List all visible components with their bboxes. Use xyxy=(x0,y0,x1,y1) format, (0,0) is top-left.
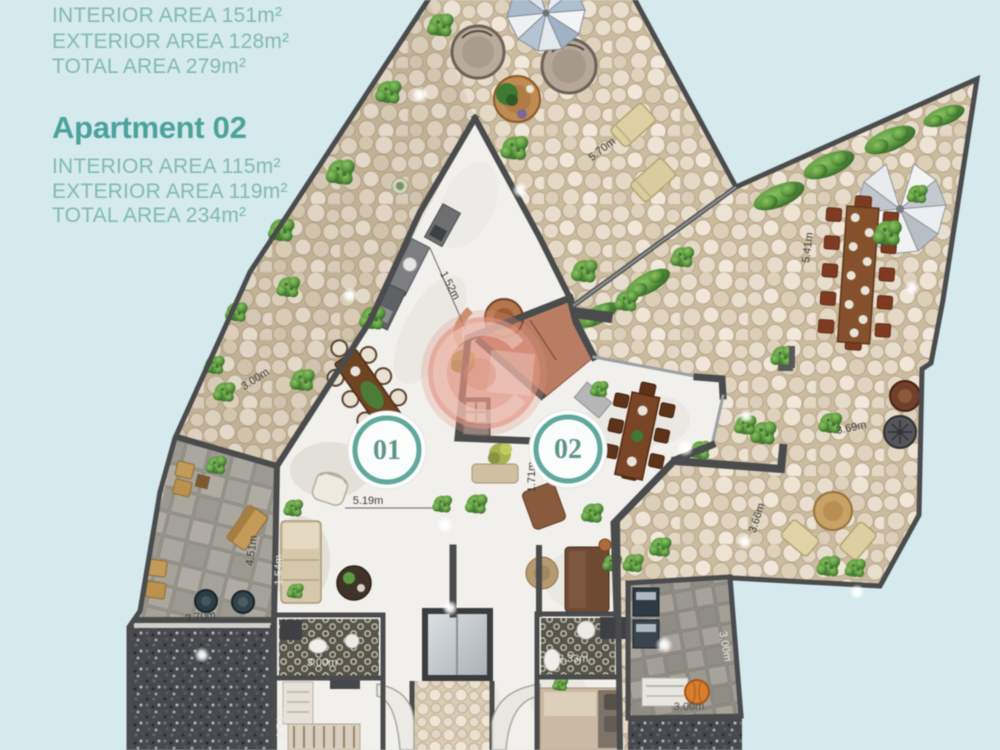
svg-text:2.71m: 2.71m xyxy=(275,708,287,739)
svg-text:2.33m: 2.33m xyxy=(558,653,589,665)
svg-text:TOTAL AREA 234m²: TOTAL AREA 234m² xyxy=(52,204,246,227)
svg-text:TOTAL AREA 279m²: TOTAL AREA 279m² xyxy=(52,55,246,78)
svg-text:1.54m: 1.54m xyxy=(273,555,285,586)
svg-text:3.00m: 3.00m xyxy=(674,701,705,713)
svg-text:02: 02 xyxy=(554,434,582,465)
svg-text:5.19m: 5.19m xyxy=(353,495,384,507)
svg-text:INTERIOR AREA 115m²: INTERIOR AREA 115m² xyxy=(52,155,281,178)
svg-text:INTERIOR AREA 151m²: INTERIOR AREA 151m² xyxy=(52,4,282,27)
svg-text:01: 01 xyxy=(373,435,401,466)
svg-text:EXTERIOR AREA 119m²: EXTERIOR AREA 119m² xyxy=(52,180,288,203)
svg-text:EXTERIOR AREA 128m²: EXTERIOR AREA 128m² xyxy=(52,30,289,53)
svg-text:3.00m: 3.00m xyxy=(307,657,338,669)
svg-text:Apartment 02: Apartment 02 xyxy=(52,110,247,145)
